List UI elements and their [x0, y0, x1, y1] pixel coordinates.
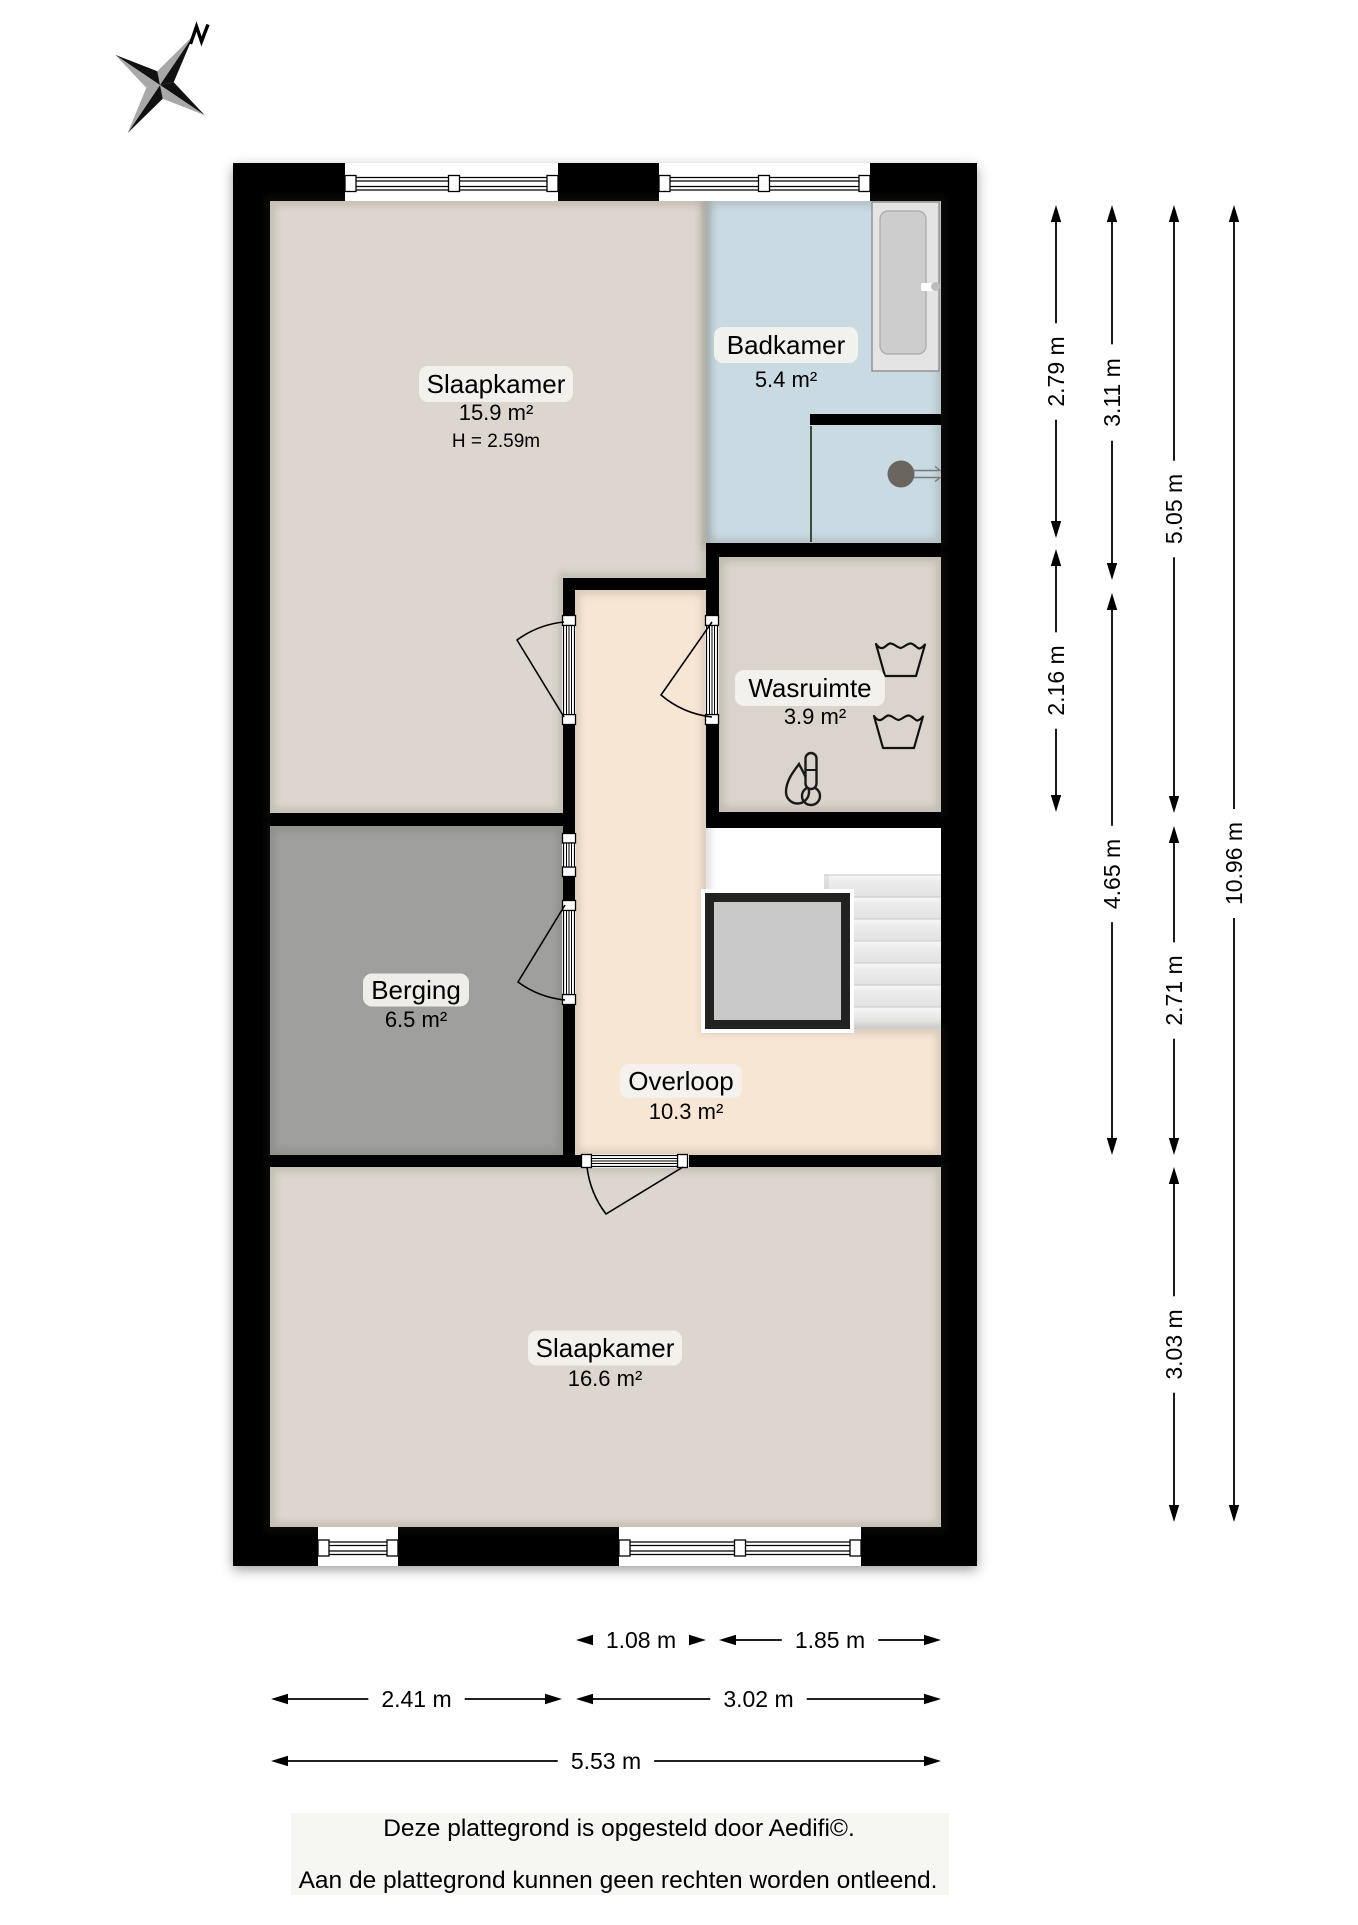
svg-text:Deze plattegrond is opgesteld: Deze plattegrond is opgesteld door Aedif…	[383, 1815, 855, 1842]
svg-text:10.3 m²: 10.3 m²	[649, 1099, 724, 1124]
svg-text:3.03 m: 3.03 m	[1161, 1309, 1187, 1379]
svg-text:1.08 m: 1.08 m	[606, 1627, 676, 1653]
svg-text:15.9 m²: 15.9 m²	[459, 400, 534, 425]
svg-text:Berging: Berging	[371, 975, 461, 1005]
svg-text:2.16 m: 2.16 m	[1043, 645, 1069, 715]
svg-text:Wasruimte: Wasruimte	[748, 673, 871, 703]
svg-text:5.53 m: 5.53 m	[571, 1748, 641, 1774]
svg-text:5.05 m: 5.05 m	[1161, 474, 1187, 544]
svg-text:Badkamer: Badkamer	[727, 330, 846, 360]
svg-text:H = 2.59m: H = 2.59m	[452, 431, 540, 452]
svg-text:3.11 m: 3.11 m	[1099, 358, 1125, 427]
svg-text:Aan de plattegrond kunnen geen: Aan de plattegrond kunnen geen rechten w…	[299, 1867, 938, 1894]
svg-text:4.65 m: 4.65 m	[1099, 839, 1125, 909]
svg-text:2.71 m: 2.71 m	[1161, 955, 1187, 1025]
svg-text:1.85 m: 1.85 m	[795, 1627, 865, 1653]
svg-text:2.79 m: 2.79 m	[1043, 336, 1069, 406]
svg-text:2.41 m: 2.41 m	[381, 1686, 451, 1712]
svg-text:3.02 m: 3.02 m	[723, 1686, 793, 1712]
svg-text:6.5 m²: 6.5 m²	[385, 1007, 447, 1032]
svg-text:5.4 m²: 5.4 m²	[755, 367, 817, 392]
svg-text:16.6 m²: 16.6 m²	[568, 1366, 643, 1391]
svg-text:10.96 m: 10.96 m	[1221, 822, 1247, 905]
svg-text:3.9 m²: 3.9 m²	[784, 704, 846, 729]
svg-text:Overloop: Overloop	[628, 1066, 734, 1096]
svg-text:Slaapkamer: Slaapkamer	[536, 1333, 675, 1363]
svg-text:Slaapkamer: Slaapkamer	[427, 369, 566, 399]
